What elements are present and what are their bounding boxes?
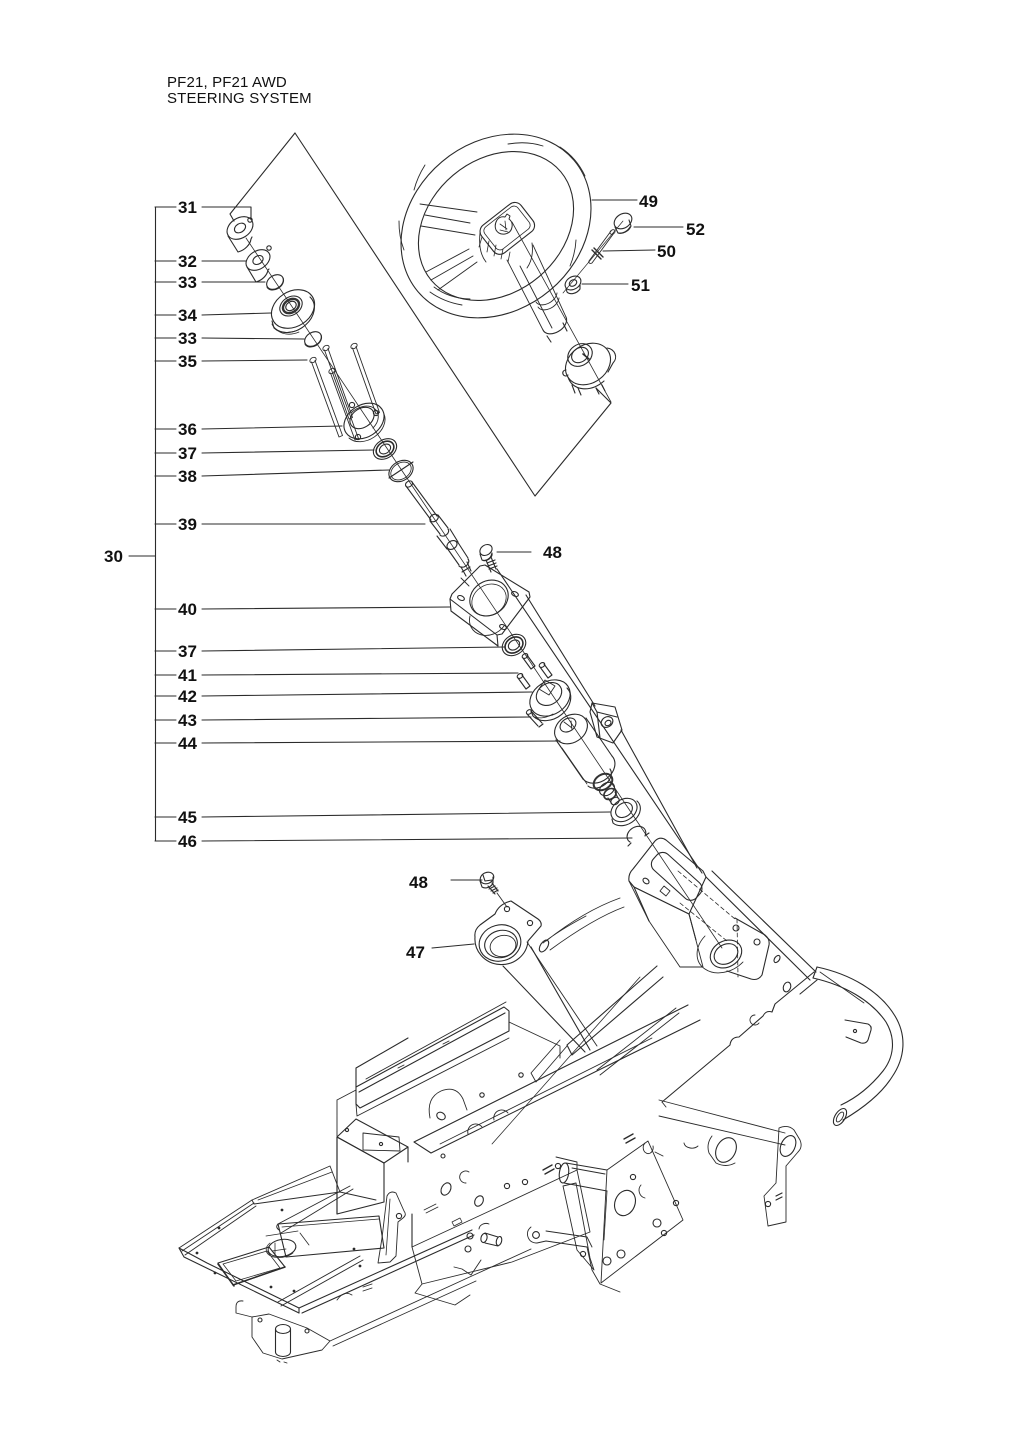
svg-text:49: 49	[639, 192, 658, 211]
svg-text:48: 48	[409, 873, 428, 892]
svg-text:44: 44	[178, 734, 197, 753]
svg-text:52: 52	[686, 220, 705, 239]
svg-text:37: 37	[178, 642, 197, 661]
svg-text:51: 51	[631, 276, 650, 295]
svg-text:38: 38	[178, 467, 197, 486]
svg-text:50: 50	[657, 242, 676, 261]
svg-text:30: 30	[104, 547, 123, 566]
svg-text:37: 37	[178, 444, 197, 463]
svg-text:39: 39	[178, 515, 197, 534]
svg-text:STEERING SYSTEM: STEERING SYSTEM	[167, 90, 312, 107]
svg-text:36: 36	[178, 420, 197, 439]
svg-text:35: 35	[178, 352, 197, 371]
svg-text:48: 48	[543, 543, 562, 562]
svg-text:43: 43	[178, 711, 197, 730]
svg-text:42: 42	[178, 687, 197, 706]
svg-text:34: 34	[178, 306, 197, 325]
svg-text:40: 40	[178, 600, 197, 619]
svg-text:41: 41	[178, 666, 197, 685]
svg-text:45: 45	[178, 808, 197, 827]
svg-text:33: 33	[178, 329, 197, 348]
svg-text:32: 32	[178, 252, 197, 271]
svg-text:33: 33	[178, 273, 197, 292]
svg-text:46: 46	[178, 832, 197, 851]
svg-text:47: 47	[406, 943, 425, 962]
svg-text:PF21, PF21 AWD: PF21, PF21 AWD	[167, 74, 287, 91]
svg-text:31: 31	[178, 198, 197, 217]
